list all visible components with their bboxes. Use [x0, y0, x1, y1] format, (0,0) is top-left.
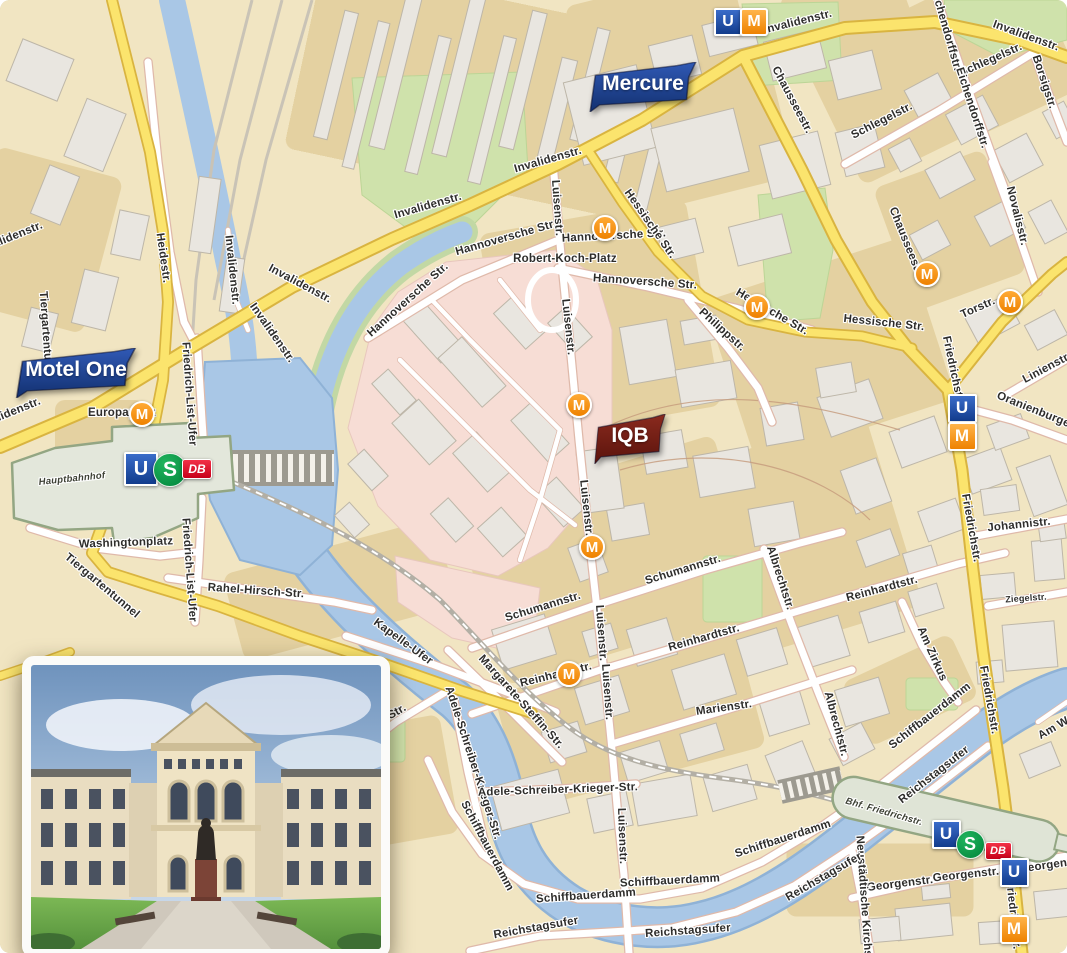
- city-map: Invalidenstr.Invalidenstr.Invalidenstr.I…: [0, 0, 1067, 953]
- inset-photo-building: [22, 656, 390, 953]
